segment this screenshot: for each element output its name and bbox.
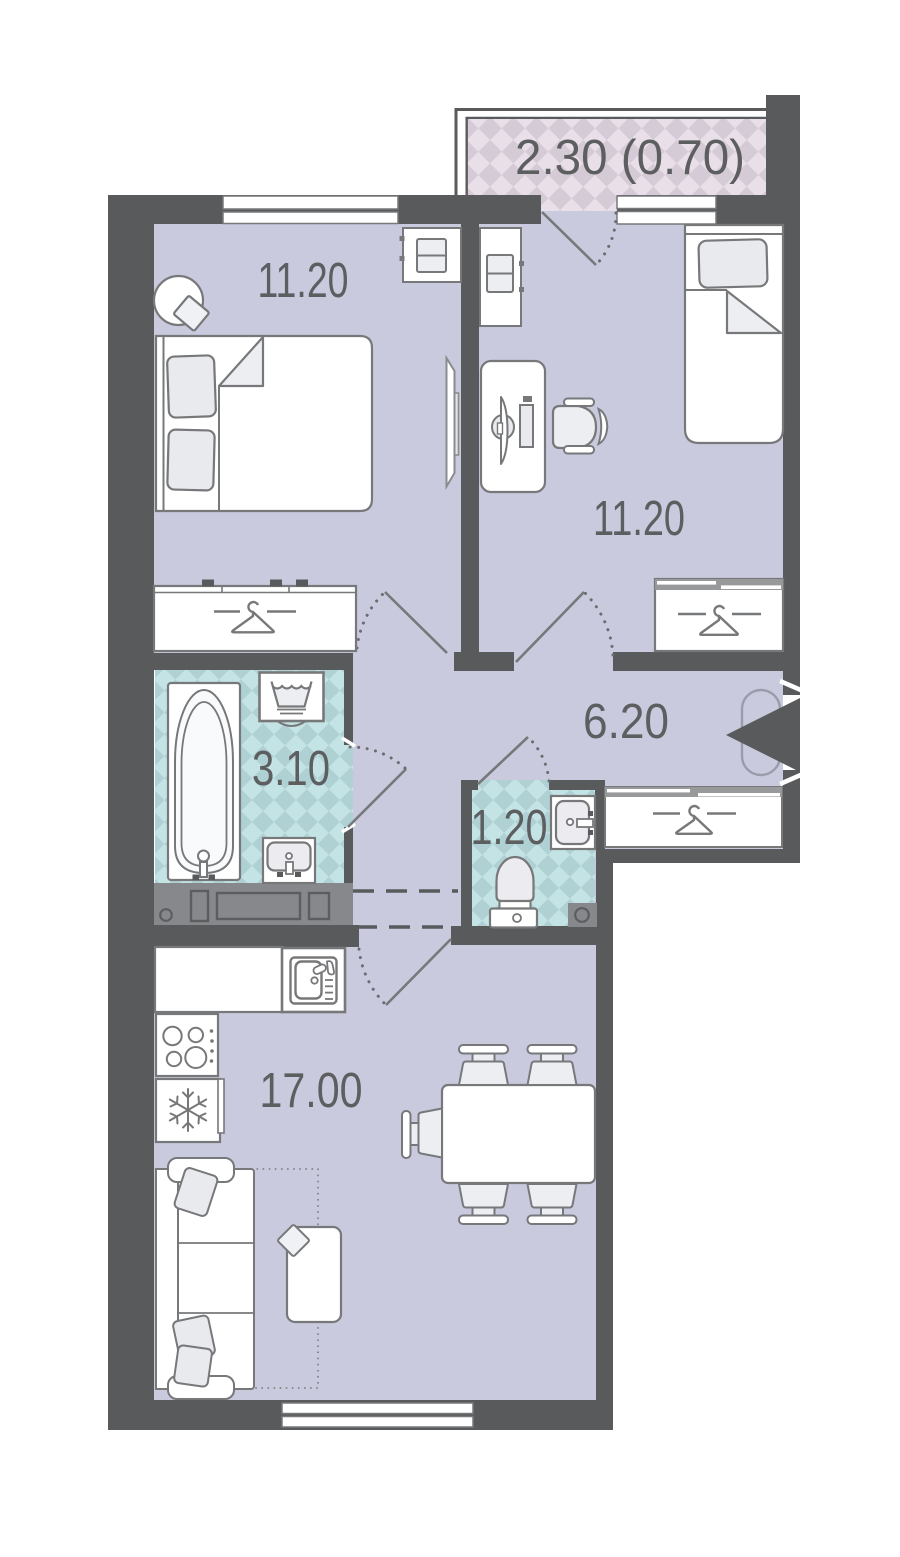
svg-text:6.20: 6.20 <box>583 695 669 749</box>
svg-text:3.10: 3.10 <box>252 742 330 796</box>
svg-text:1.20: 1.20 <box>471 801 548 855</box>
svg-text:2.30 (0.70): 2.30 (0.70) <box>515 131 745 185</box>
svg-text:11.20: 11.20 <box>258 254 349 308</box>
svg-text:17.00: 17.00 <box>260 1064 363 1118</box>
svg-text:11.20: 11.20 <box>593 492 685 546</box>
